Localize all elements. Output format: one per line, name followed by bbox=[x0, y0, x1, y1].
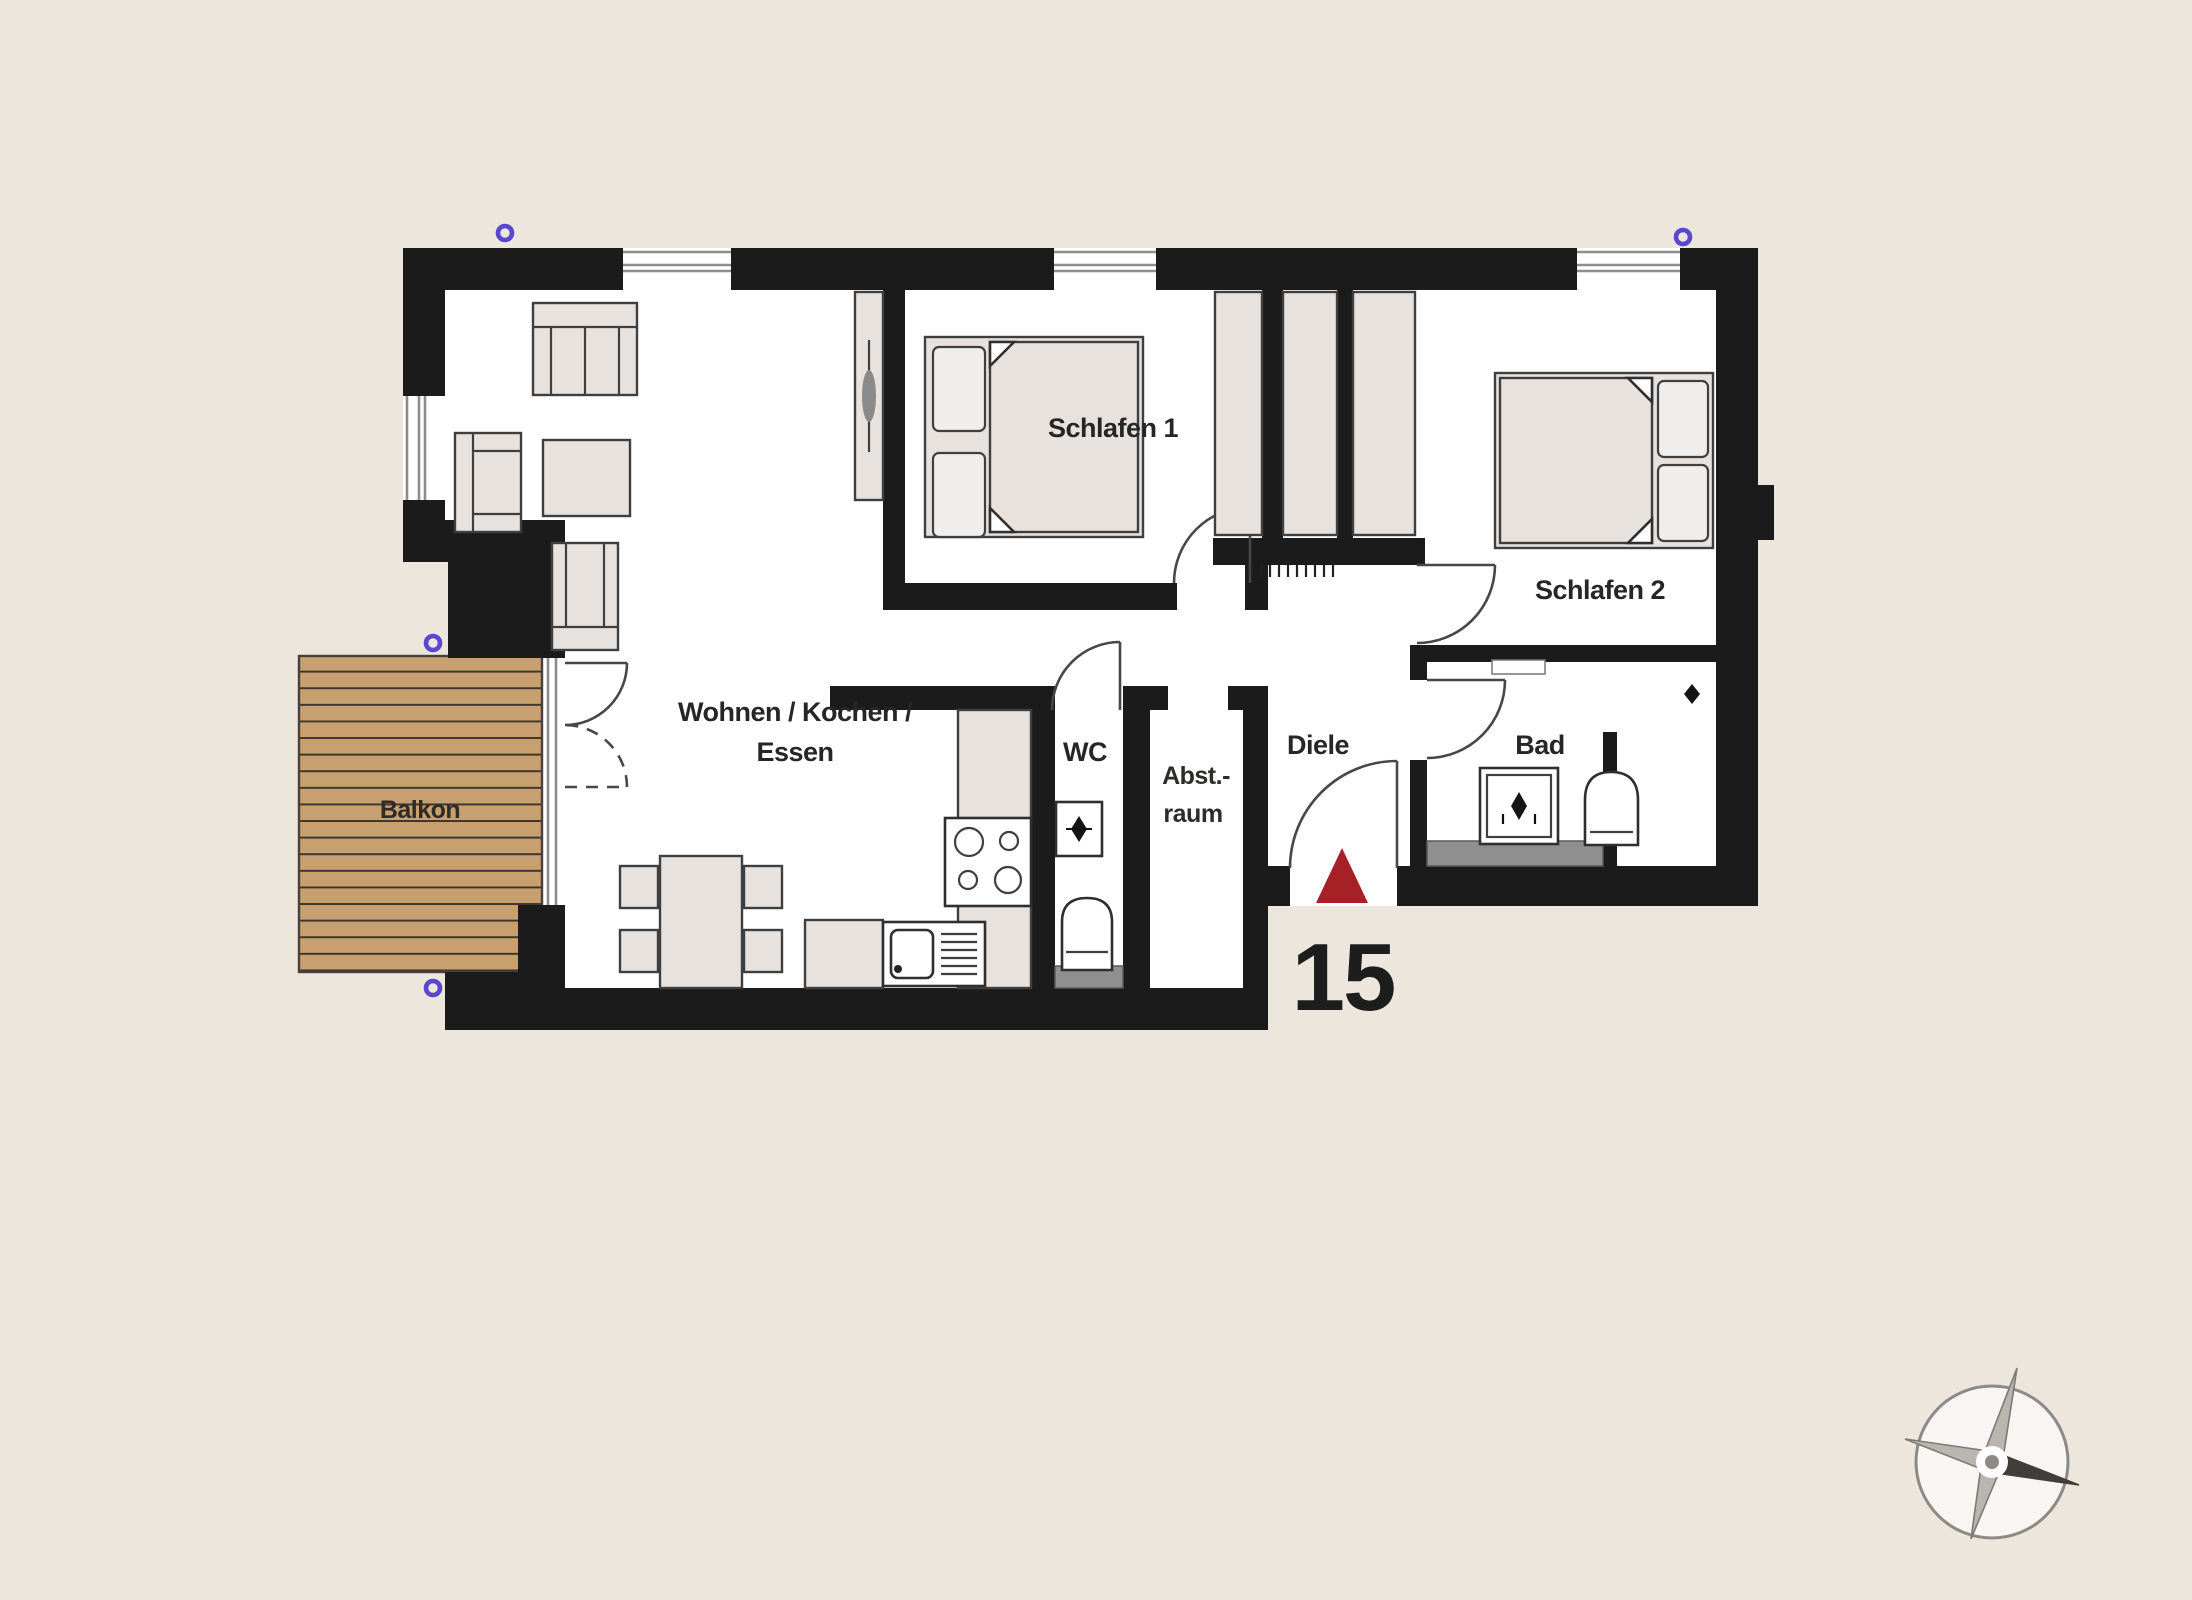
sofa bbox=[533, 303, 637, 395]
label-abstraum-line1: Abst.- bbox=[1162, 762, 1230, 790]
label-wohnen-line2: Essen bbox=[756, 737, 833, 767]
coffee-table bbox=[543, 440, 630, 516]
bed-schlafen2 bbox=[1495, 373, 1713, 548]
sink-icon bbox=[883, 922, 985, 986]
floorplan-page: 15 Schlafen 1 Schlafen 2 Wohnen / Kochen… bbox=[0, 0, 2192, 1600]
label-balkon: Balkon bbox=[380, 796, 460, 824]
window-left bbox=[403, 396, 445, 500]
wc-toilet-icon bbox=[1062, 898, 1112, 970]
tv-icon bbox=[862, 370, 876, 422]
tv-sideboard bbox=[855, 292, 883, 500]
corner-dot-icon bbox=[498, 226, 512, 240]
bad-door-niche bbox=[1492, 660, 1545, 674]
label-abstraum-line2: raum bbox=[1163, 800, 1222, 828]
wardrobe-schlafen1 bbox=[1215, 292, 1262, 535]
label-wc: WC bbox=[1063, 737, 1107, 767]
window-living bbox=[623, 248, 731, 290]
armchair-west bbox=[455, 433, 521, 532]
armchair-south bbox=[552, 543, 618, 650]
label-diele: Diele bbox=[1287, 730, 1350, 760]
label-wohnen-line1: Wohnen / Kochen / bbox=[678, 697, 913, 727]
label-schlafen1: Schlafen 1 bbox=[1048, 413, 1179, 443]
bad-sink-icon bbox=[1480, 768, 1558, 844]
window-schlafen1 bbox=[1054, 248, 1156, 290]
bad-toilet-icon bbox=[1585, 772, 1638, 845]
corner-dot-icon bbox=[426, 981, 440, 995]
counter-piece bbox=[805, 920, 883, 988]
unit-number: 15 bbox=[1292, 924, 1395, 1031]
stove-icon bbox=[945, 818, 1031, 906]
wc-basin-icon bbox=[1056, 802, 1102, 856]
floorplan-drawing: 15 Schlafen 1 Schlafen 2 Wohnen / Kochen… bbox=[0, 0, 2192, 1600]
window-schlafen2 bbox=[1577, 248, 1680, 290]
wardrobe-middle bbox=[1283, 292, 1337, 535]
label-schlafen2: Schlafen 2 bbox=[1535, 575, 1665, 605]
corner-dot-icon bbox=[1676, 230, 1690, 244]
compass-rose-icon bbox=[1905, 1368, 2079, 1539]
wardrobe-schlafen2 bbox=[1353, 292, 1415, 535]
label-bad: Bad bbox=[1515, 730, 1565, 760]
